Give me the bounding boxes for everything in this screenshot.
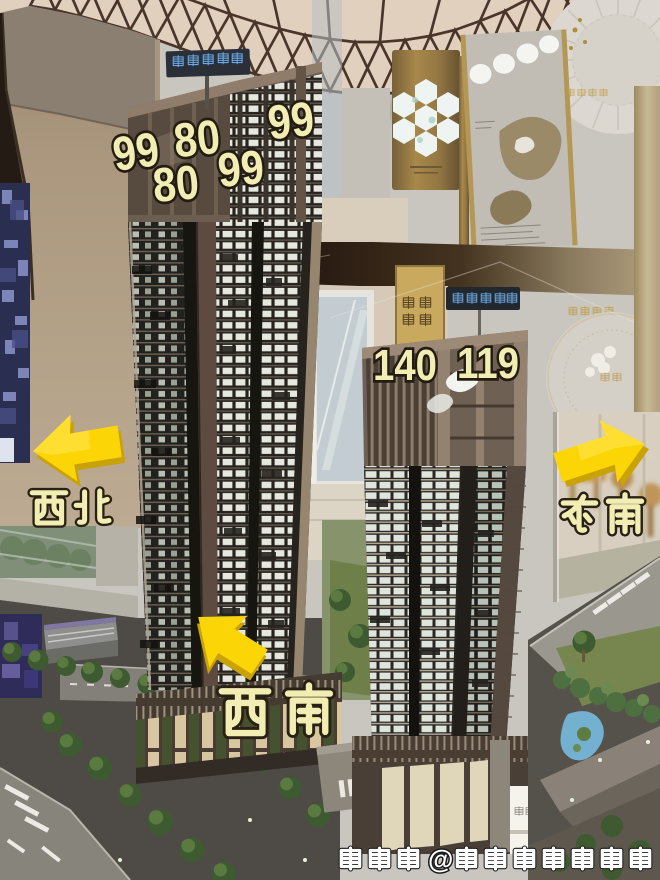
svg-text:99: 99 xyxy=(216,141,266,198)
svg-text:140: 140 xyxy=(373,341,437,390)
svg-text:@: @ xyxy=(428,844,453,874)
svg-text:80: 80 xyxy=(151,156,201,213)
svg-text:99: 99 xyxy=(265,93,316,151)
svg-text:119: 119 xyxy=(457,339,519,388)
